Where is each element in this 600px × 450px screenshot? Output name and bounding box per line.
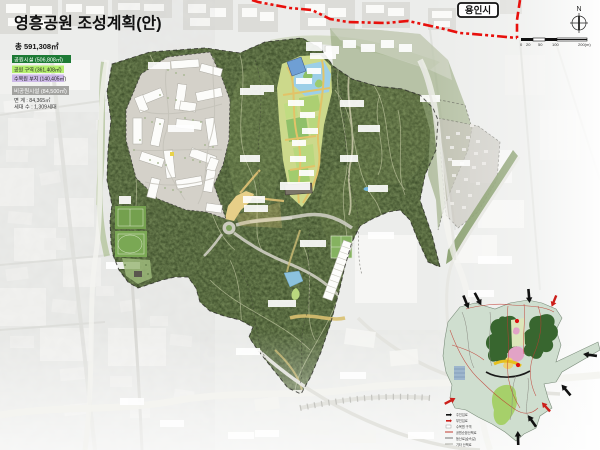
svg-text:수목원 부지 (140,405㎡): 수목원 부지 (140,405㎡) xyxy=(14,75,67,82)
svg-text:기타 산책로: 기타 산책로 xyxy=(456,442,472,447)
svg-text:N: N xyxy=(576,6,581,13)
svg-text:수목원 구역: 수목원 구역 xyxy=(456,424,472,429)
svg-text:200(m): 200(m) xyxy=(578,42,591,47)
svg-text:50: 50 xyxy=(538,42,543,47)
svg-text:총 591,308㎡: 총 591,308㎡ xyxy=(15,41,59,51)
svg-text:부진입로: 부진입로 xyxy=(456,418,468,423)
svg-text:면 계 : 84,365㎡: 면 계 : 84,365㎡ xyxy=(14,96,51,104)
svg-text:공원순환산책로: 공원순환산책로 xyxy=(456,430,477,435)
svg-text:20: 20 xyxy=(526,42,531,47)
svg-text:100: 100 xyxy=(552,42,559,47)
svg-text:용인시: 용인시 xyxy=(465,6,491,17)
svg-text:주진입로: 주진입로 xyxy=(456,412,468,417)
svg-text:비공원시설 (84,500㎡): 비공원시설 (84,500㎡) xyxy=(14,87,67,95)
svg-text:공원 구역 (361,408㎡): 공원 구역 (361,408㎡) xyxy=(14,66,62,73)
svg-text:영흥공원 조성계획(안): 영흥공원 조성계획(안) xyxy=(14,14,162,33)
svg-text:세대 수 : 1,309세대: 세대 수 : 1,309세대 xyxy=(14,103,57,111)
svg-text:공원시설 (506,808㎡): 공원시설 (506,808㎡) xyxy=(14,56,63,64)
svg-text:등산로(숲속길): 등산로(숲속길) xyxy=(456,436,476,441)
